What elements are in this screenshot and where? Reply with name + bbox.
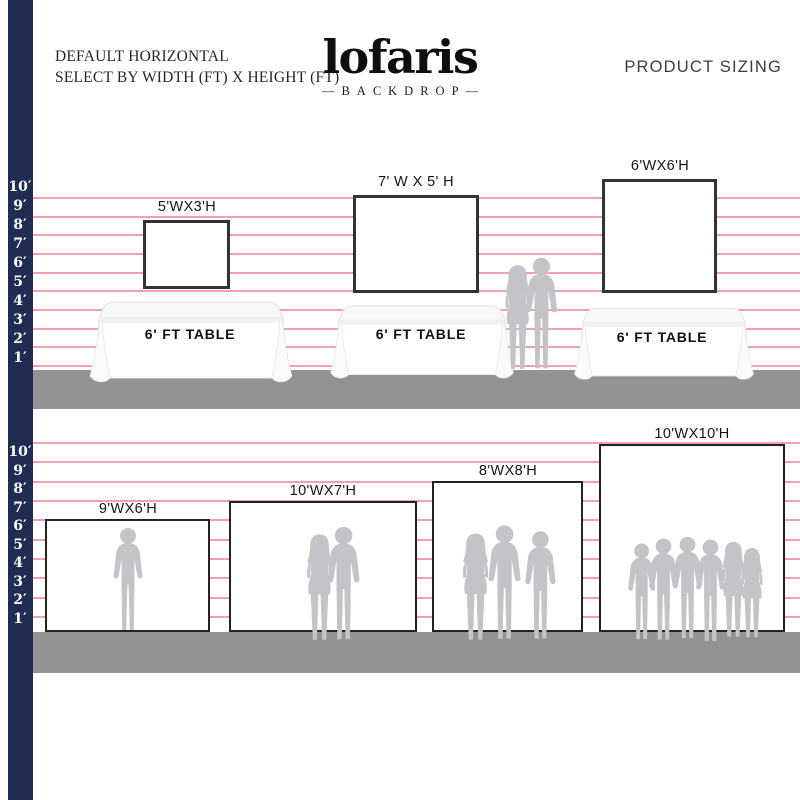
backdrop-6x6-label: 6'WX6'H (631, 158, 689, 174)
backdrop-7x5 (353, 195, 479, 293)
table-1 (84, 298, 298, 386)
backdrop-9x6-label: 9'WX6'H (99, 501, 157, 517)
people-trio (438, 520, 578, 645)
product-sizing-diagram: DEFAULT HORIZONTAL SELECT BY WIDTH (FT) … (0, 0, 800, 800)
backdrop-10x7-label: 10'WX7'H (290, 483, 357, 499)
backdrop-6x6 (602, 179, 717, 293)
table-3-label: 6' FT TABLE (617, 329, 707, 345)
people-couple-top (488, 252, 570, 374)
table-2-label: 6' FT TABLE (376, 326, 466, 342)
brand-tagline: —BACKDROP— (290, 84, 510, 99)
ruler-bar (8, 0, 33, 800)
backdrop-10x10-label: 10'WX10'H (654, 426, 729, 442)
page-title: PRODUCT SIZING (610, 58, 782, 77)
backdrop-7x5-label: 7' W X 5' H (378, 174, 454, 190)
table-1-label: 6' FT TABLE (145, 326, 235, 342)
brand-logo: lofaris —BACKDROP— (290, 33, 510, 99)
backdrop-5x3 (143, 220, 230, 289)
brand-name: lofaris (290, 33, 510, 81)
backdrop-5x3-label: 5'WX3'H (158, 199, 216, 215)
backdrop-8x8-label: 8'WX8'H (479, 463, 537, 479)
people-single-man (106, 526, 150, 633)
people-group-six (597, 529, 789, 647)
people-couple-bottom (288, 521, 374, 645)
